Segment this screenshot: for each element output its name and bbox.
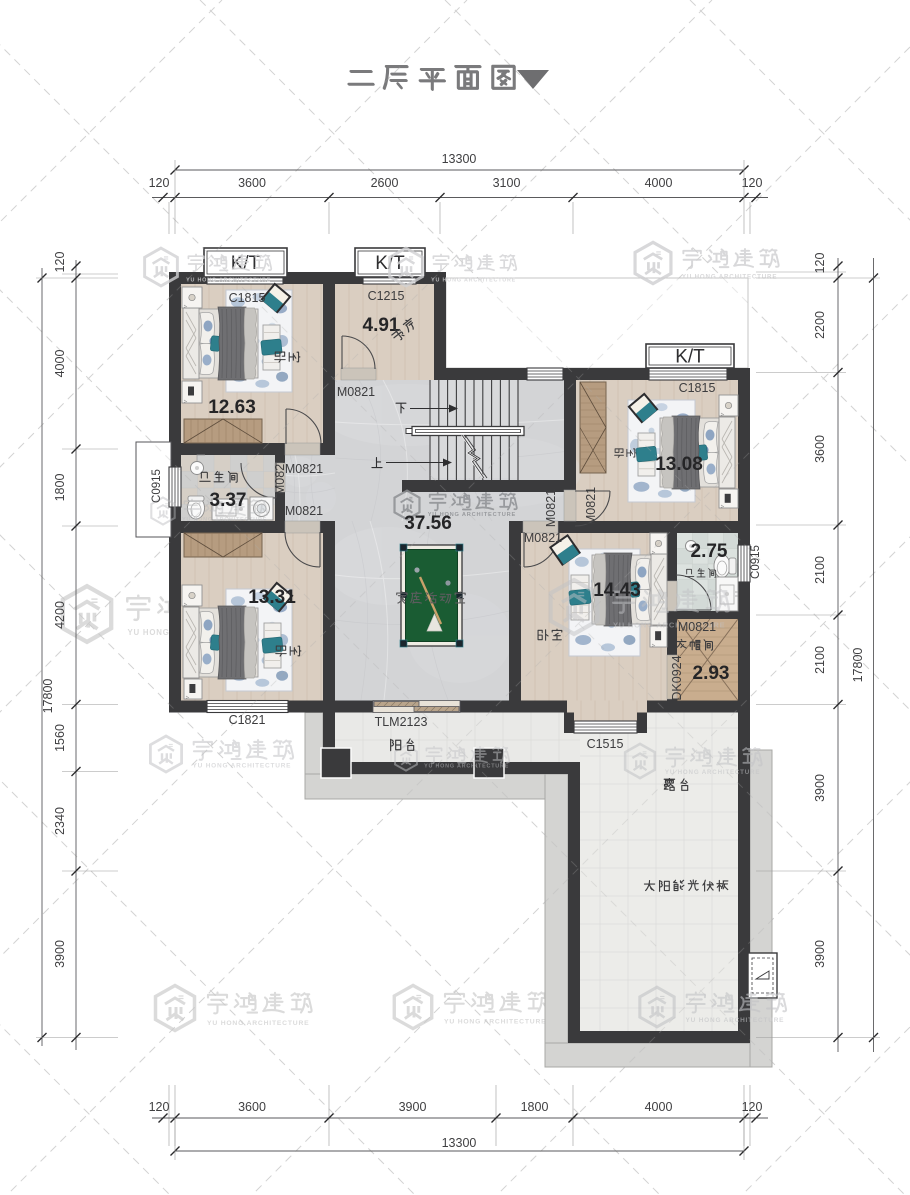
svg-text:1800: 1800	[53, 474, 67, 502]
svg-text:4000: 4000	[645, 1100, 673, 1114]
svg-text:M0821: M0821	[285, 462, 323, 476]
svg-text:YU HONG ARCHITECTURE: YU HONG ARCHITECTURE	[182, 517, 267, 523]
svg-text:3900: 3900	[399, 1100, 427, 1114]
svg-text:YU HONG ARCHITECTURE: YU HONG ARCHITECTURE	[424, 764, 509, 770]
svg-text:K/T: K/T	[675, 347, 705, 368]
svg-text:17800: 17800	[851, 648, 865, 683]
svg-text:37.56: 37.56	[404, 513, 452, 534]
svg-text:2600: 2600	[371, 176, 399, 190]
svg-text:120: 120	[742, 1100, 763, 1114]
svg-text:3600: 3600	[813, 435, 827, 463]
svg-text:YU HONG ARCHITECTURE: YU HONG ARCHITECTURE	[193, 763, 292, 770]
svg-text:YU HONG ARCHITECTURE: YU HONG ARCHITECTURE	[444, 1018, 546, 1025]
svg-text:4000: 4000	[53, 350, 67, 378]
svg-text:2100: 2100	[813, 556, 827, 584]
svg-text:120: 120	[813, 253, 827, 274]
svg-text:13.08: 13.08	[655, 454, 703, 475]
svg-text:M0821: M0821	[544, 489, 558, 527]
svg-text:1800: 1800	[521, 1100, 549, 1114]
svg-text:3900: 3900	[53, 940, 67, 968]
svg-text:17800: 17800	[41, 679, 55, 714]
svg-text:13300: 13300	[442, 1136, 477, 1150]
svg-text:C1815: C1815	[229, 291, 266, 305]
svg-text:12.63: 12.63	[208, 397, 256, 418]
svg-text:YU HONG ARCHITECTURE: YU HONG ARCHITECTURE	[665, 769, 760, 776]
svg-text:M0821: M0821	[273, 457, 287, 495]
svg-text:4000: 4000	[645, 176, 673, 190]
svg-text:3.37: 3.37	[210, 490, 247, 511]
svg-text:3900: 3900	[813, 940, 827, 968]
svg-text:13300: 13300	[442, 152, 477, 166]
svg-text:120: 120	[149, 176, 170, 190]
svg-text:2200: 2200	[813, 311, 827, 339]
svg-text:120: 120	[149, 1100, 170, 1114]
svg-text:2340: 2340	[53, 807, 67, 835]
svg-text:YU HONG ARCHITECTURE: YU HONG ARCHITECTURE	[207, 1020, 309, 1027]
svg-text:M0821: M0821	[584, 487, 598, 525]
svg-text:2100: 2100	[813, 646, 827, 674]
svg-text:C1821: C1821	[229, 713, 266, 727]
svg-text:YU HONG ARCHITECTURE: YU HONG ARCHITECTURE	[686, 1017, 785, 1024]
svg-text:13.31: 13.31	[248, 587, 296, 608]
svg-text:C1515: C1515	[587, 737, 624, 751]
svg-text:YU HONG ARCHITECTURE: YU HONG ARCHITECTURE	[186, 277, 271, 283]
svg-text:TLM2123: TLM2123	[375, 715, 428, 729]
svg-text:C0915: C0915	[750, 545, 762, 579]
svg-text:120: 120	[742, 176, 763, 190]
svg-text:C1815: C1815	[679, 381, 716, 395]
svg-text:M0821: M0821	[524, 531, 562, 545]
svg-text:YU HONG ARCHITECTURE: YU HONG ARCHITECTURE	[431, 277, 516, 283]
svg-text:120: 120	[53, 252, 67, 273]
svg-text:YU HONG ARCHITECTURE: YU HONG ARCHITECTURE	[682, 274, 777, 281]
svg-text:M0821: M0821	[337, 385, 375, 399]
svg-text:3600: 3600	[238, 176, 266, 190]
svg-text:4200: 4200	[53, 601, 67, 629]
svg-text:C1215: C1215	[368, 289, 405, 303]
svg-text:1560: 1560	[53, 724, 67, 752]
svg-text:2.75: 2.75	[691, 541, 728, 562]
svg-text:3600: 3600	[238, 1100, 266, 1114]
svg-text:C0915: C0915	[151, 469, 163, 503]
svg-text:14.43: 14.43	[593, 580, 641, 601]
svg-text:M0821: M0821	[285, 504, 323, 518]
svg-text:3900: 3900	[813, 774, 827, 802]
svg-text:M0821: M0821	[678, 620, 716, 634]
svg-text:2.93: 2.93	[693, 663, 730, 684]
svg-text:3100: 3100	[493, 176, 521, 190]
svg-text:DK0924: DK0924	[670, 655, 684, 700]
